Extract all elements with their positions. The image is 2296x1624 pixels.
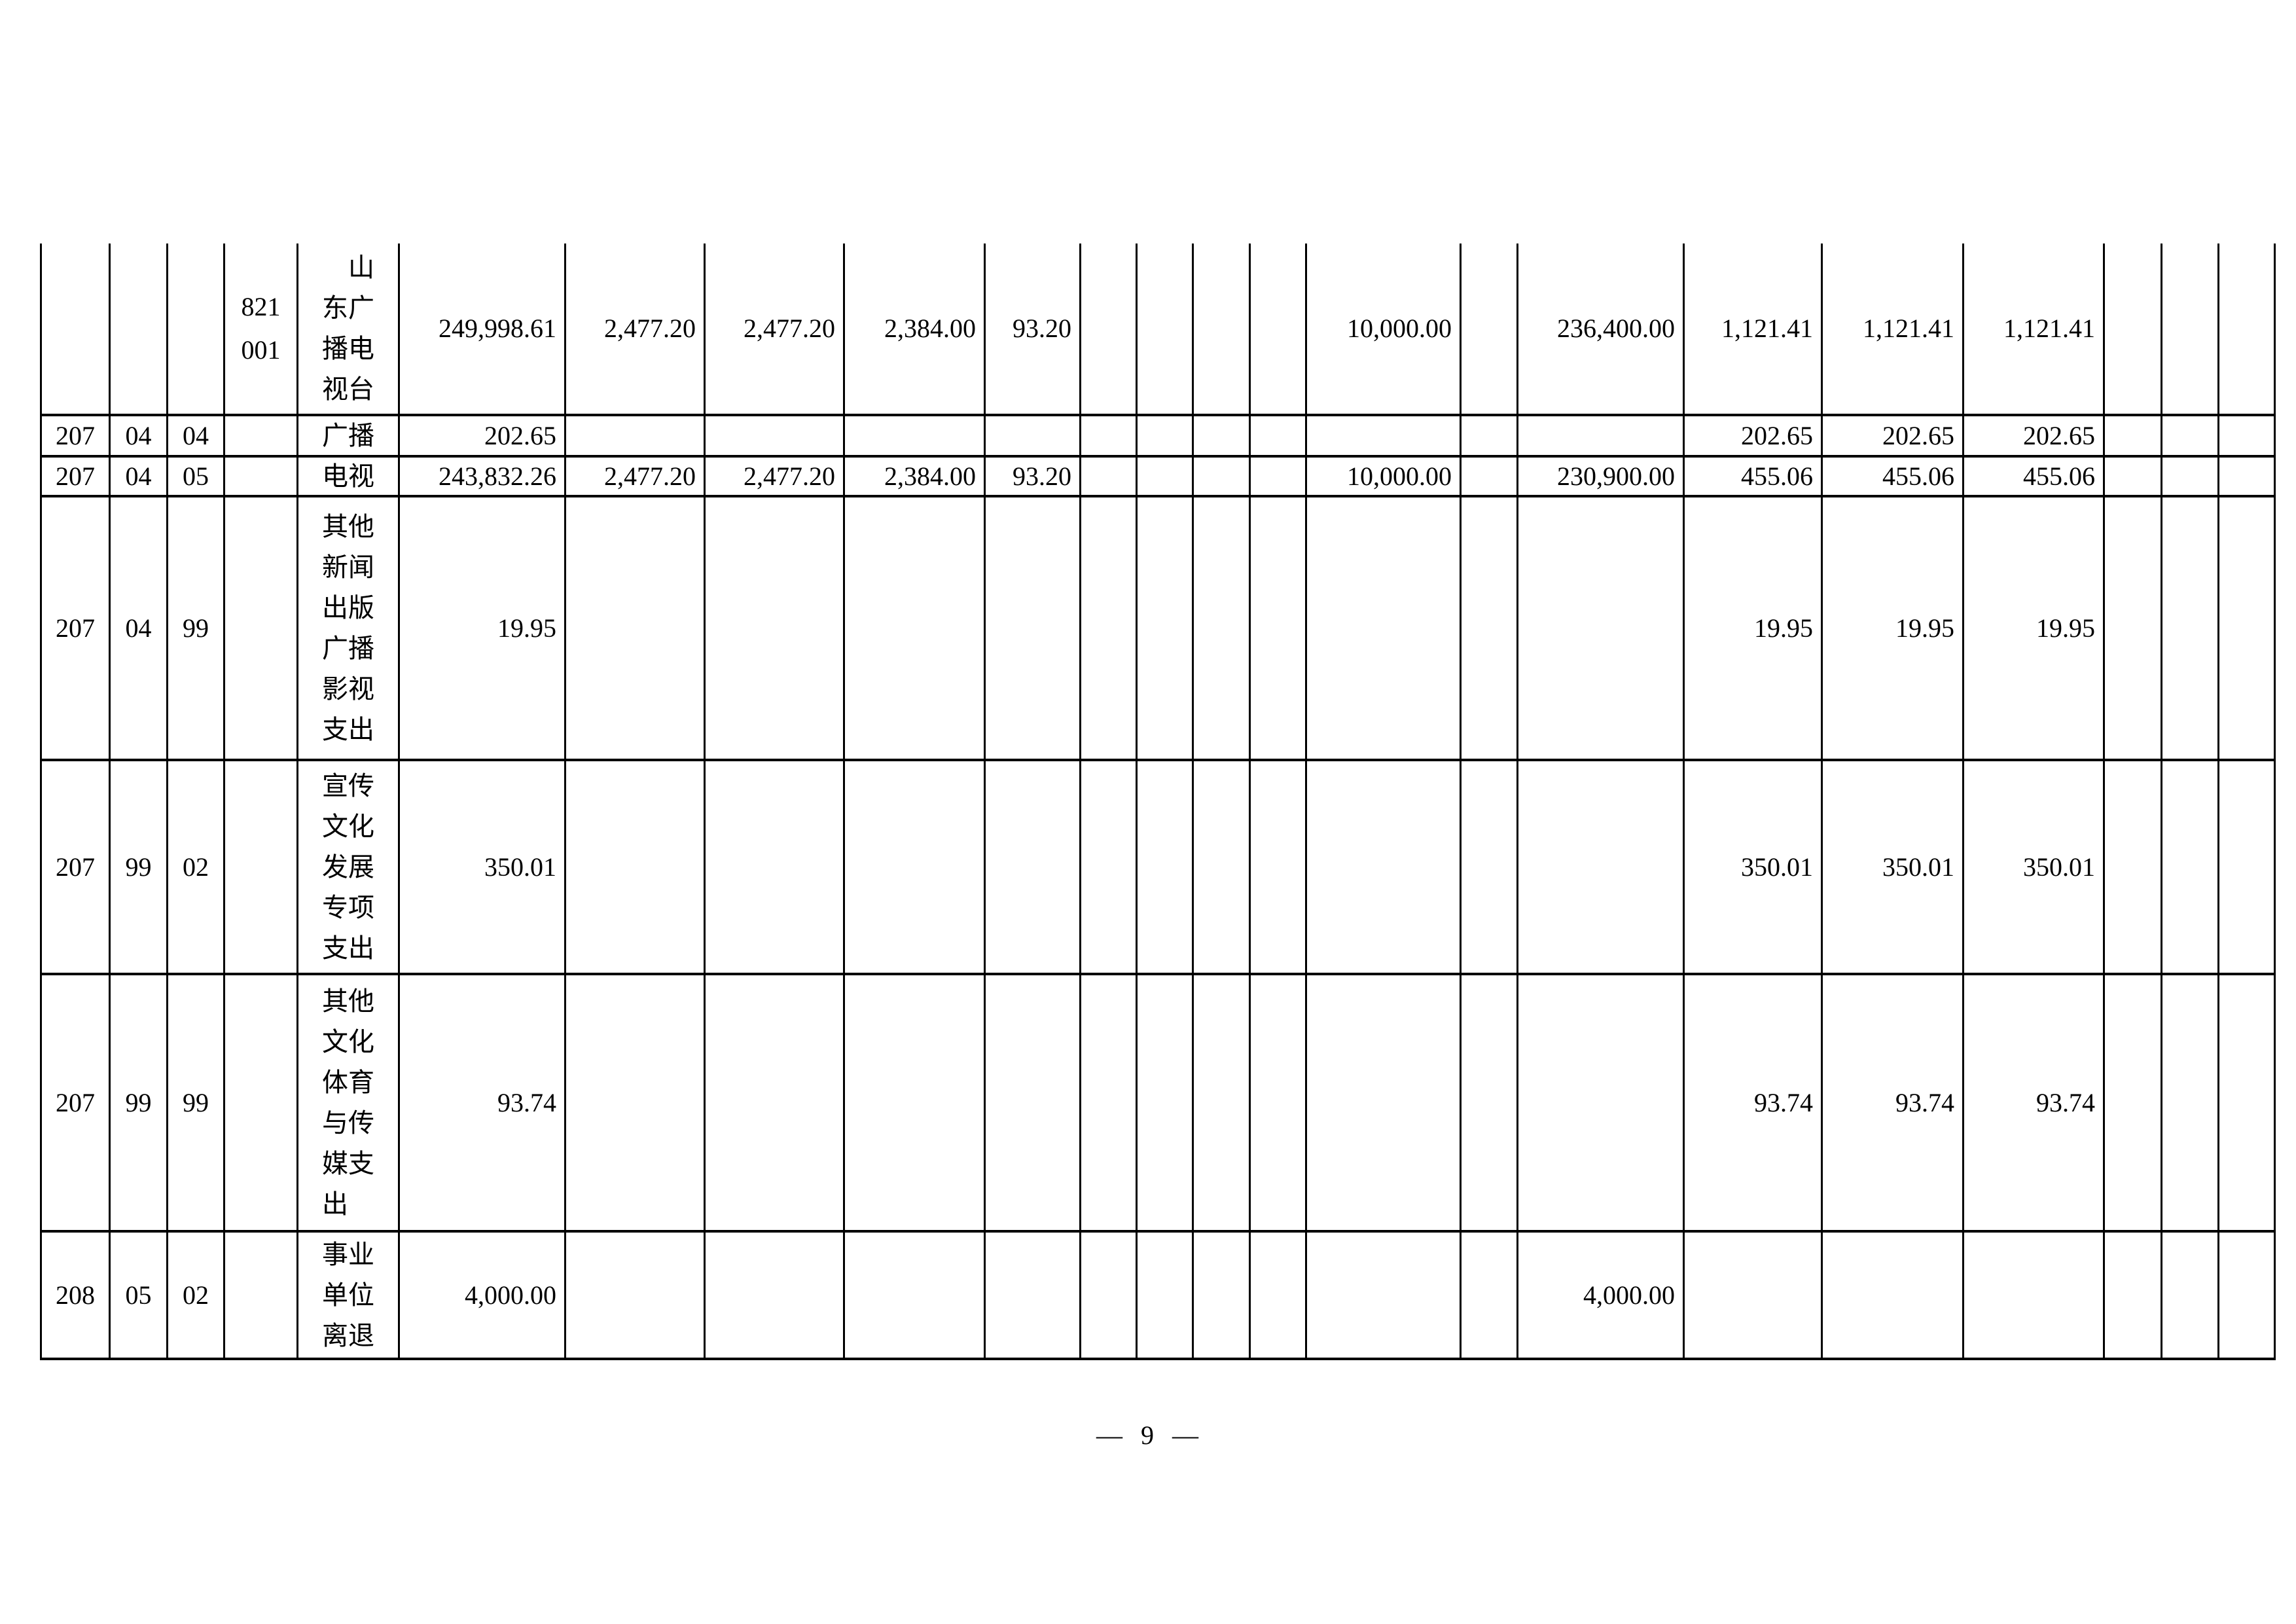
amount-cell: 2,477.20 bbox=[706, 244, 845, 416]
subject-code-cell: 207 bbox=[40, 761, 111, 975]
amount-cell bbox=[1518, 975, 1685, 1233]
table-row: 2070405电视243,832.262,477.202,477.202,384… bbox=[40, 458, 2276, 497]
table-row: 2079902宣传 文化 发展 专项 支出350.01350.01350.013… bbox=[40, 761, 2276, 975]
amount-cell bbox=[1251, 1233, 1307, 1360]
amount-cell bbox=[1081, 458, 1138, 497]
amount-cell bbox=[1081, 975, 1138, 1233]
amount-cell: 350.01 bbox=[1685, 761, 1823, 975]
cell-text: 93.74 bbox=[1895, 1086, 1954, 1120]
cell-text: 350.01 bbox=[484, 850, 556, 884]
cell-text: 4,000.00 bbox=[465, 1278, 556, 1312]
amount-cell bbox=[1081, 1233, 1138, 1360]
amount-cell bbox=[706, 1233, 845, 1360]
amount-cell bbox=[1194, 458, 1251, 497]
amount-cell bbox=[1462, 416, 1518, 458]
amount-cell bbox=[1138, 1233, 1194, 1360]
subject-code-cell: 04 bbox=[111, 416, 168, 458]
amount-cell bbox=[2219, 416, 2276, 458]
cell-text: 236,400.00 bbox=[1557, 312, 1675, 346]
amount-cell bbox=[1251, 416, 1307, 458]
amount-cell: 202.65 bbox=[400, 416, 566, 458]
amount-cell bbox=[706, 497, 845, 761]
amount-cell bbox=[1462, 761, 1518, 975]
amount-cell bbox=[2105, 975, 2162, 1233]
cell-text: 350.01 bbox=[1882, 850, 1954, 884]
amount-cell: 2,477.20 bbox=[566, 244, 706, 416]
amount-cell bbox=[1194, 975, 1251, 1233]
amount-cell bbox=[986, 416, 1081, 458]
cell-text: 202.65 bbox=[2023, 419, 2095, 453]
amount-cell bbox=[706, 761, 845, 975]
cell-text: 2,384.00 bbox=[884, 460, 976, 494]
amount-cell bbox=[1307, 416, 1462, 458]
cell-text: 其他 新闻 出版 广播 影视 支出 bbox=[322, 507, 374, 750]
amount-cell bbox=[1462, 458, 1518, 497]
amount-cell bbox=[2219, 244, 2276, 416]
subject-name-cell: 宣传 文化 发展 专项 支出 bbox=[298, 761, 400, 975]
cell-text: 207 bbox=[56, 416, 95, 458]
cell-text: 电视 bbox=[322, 458, 374, 497]
amount-cell bbox=[1518, 761, 1685, 975]
amount-cell bbox=[1462, 975, 1518, 1233]
subject-code-cell: 02 bbox=[168, 1233, 225, 1360]
subject-code-cell: 02 bbox=[168, 761, 225, 975]
amount-cell bbox=[1194, 497, 1251, 761]
amount-cell bbox=[986, 497, 1081, 761]
cell-text: 230,900.00 bbox=[1557, 460, 1675, 494]
unit-code-cell bbox=[225, 975, 298, 1233]
subject-code-cell bbox=[40, 244, 111, 416]
amount-cell: 4,000.00 bbox=[1518, 1233, 1685, 1360]
cell-text: 99 bbox=[183, 1081, 209, 1125]
cell-text: 2,384.00 bbox=[884, 312, 976, 346]
amount-cell bbox=[2162, 1233, 2219, 1360]
subject-code-cell: 99 bbox=[168, 497, 225, 761]
amount-cell: 455.06 bbox=[1964, 458, 2105, 497]
amount-cell bbox=[1251, 975, 1307, 1233]
amount-cell bbox=[986, 1233, 1081, 1360]
amount-cell: 249,998.61 bbox=[400, 244, 566, 416]
amount-cell bbox=[1138, 416, 1194, 458]
amount-cell bbox=[1081, 497, 1138, 761]
cell-text: 2,477.20 bbox=[744, 312, 835, 346]
cell-text: 207 bbox=[56, 846, 95, 889]
cell-text: 207 bbox=[56, 607, 95, 650]
table-row: 2070499其他 新闻 出版 广播 影视 支出19.9519.9519.951… bbox=[40, 497, 2276, 761]
cell-text: 广播 bbox=[322, 416, 374, 456]
subject-code-cell bbox=[111, 244, 168, 416]
subject-code-cell: 05 bbox=[111, 1233, 168, 1360]
cell-text: 821 001 bbox=[242, 285, 281, 372]
amount-cell bbox=[845, 497, 986, 761]
amount-cell bbox=[1081, 761, 1138, 975]
cell-text: 04 bbox=[126, 607, 152, 650]
unit-code-cell bbox=[225, 761, 298, 975]
amount-cell bbox=[2162, 244, 2219, 416]
subject-name-cell: 其他 新闻 出版 广播 影视 支出 bbox=[298, 497, 400, 761]
amount-cell bbox=[566, 497, 706, 761]
subject-name-cell: 电视 bbox=[298, 458, 400, 497]
amount-cell bbox=[706, 416, 845, 458]
cell-text: 02 bbox=[183, 1274, 209, 1317]
amount-cell bbox=[1462, 1233, 1518, 1360]
cell-text: 10,000.00 bbox=[1347, 460, 1452, 494]
amount-cell: 1,121.41 bbox=[1685, 244, 1823, 416]
cell-text: 93.74 bbox=[497, 1086, 556, 1120]
subject-code-cell: 04 bbox=[111, 497, 168, 761]
unit-code-cell bbox=[225, 497, 298, 761]
amount-cell bbox=[845, 416, 986, 458]
amount-cell bbox=[566, 761, 706, 975]
amount-cell bbox=[2219, 497, 2276, 761]
amount-cell bbox=[986, 975, 1081, 1233]
cell-text: 1,121.41 bbox=[1721, 312, 1813, 346]
amount-cell: 19.95 bbox=[400, 497, 566, 761]
subject-code-cell: 99 bbox=[111, 761, 168, 975]
amount-cell bbox=[1138, 244, 1194, 416]
cell-text: 99 bbox=[126, 1081, 152, 1125]
table-row: 2070404广播202.65202.65202.65202.65 bbox=[40, 416, 2276, 458]
table-row: 821 001 山 东广 播电 视台249,998.612,477.202,47… bbox=[40, 244, 2276, 416]
cell-text: 其他 文化 体育 与传 媒支 出 bbox=[322, 981, 374, 1225]
subject-name-cell: 其他 文化 体育 与传 媒支 出 bbox=[298, 975, 400, 1233]
amount-cell bbox=[2105, 416, 2162, 458]
amount-cell: 455.06 bbox=[1685, 458, 1823, 497]
amount-cell: 93.74 bbox=[400, 975, 566, 1233]
amount-cell bbox=[2219, 761, 2276, 975]
amount-cell bbox=[2105, 244, 2162, 416]
amount-cell: 19.95 bbox=[1685, 497, 1823, 761]
amount-cell bbox=[2219, 458, 2276, 497]
amount-cell: 1,121.41 bbox=[1823, 244, 1964, 416]
amount-cell bbox=[1251, 458, 1307, 497]
cell-text: 243,832.26 bbox=[439, 460, 556, 494]
amount-cell: 202.65 bbox=[1685, 416, 1823, 458]
table-row: 2079999其他 文化 体育 与传 媒支 出93.7493.7493.7493… bbox=[40, 975, 2276, 1233]
amount-cell bbox=[2105, 761, 2162, 975]
amount-cell: 93.74 bbox=[1685, 975, 1823, 1233]
amount-cell: 202.65 bbox=[1964, 416, 2105, 458]
amount-cell: 2,384.00 bbox=[845, 244, 986, 416]
amount-cell bbox=[2162, 416, 2219, 458]
amount-cell: 2,477.20 bbox=[706, 458, 845, 497]
amount-cell bbox=[2105, 497, 2162, 761]
amount-cell: 93.20 bbox=[986, 244, 1081, 416]
amount-cell bbox=[1462, 244, 1518, 416]
amount-cell bbox=[2162, 458, 2219, 497]
cell-text: 2,477.20 bbox=[744, 460, 835, 494]
amount-cell: 2,477.20 bbox=[566, 458, 706, 497]
cell-text: 93.74 bbox=[1754, 1086, 1813, 1120]
subject-code-cell: 208 bbox=[40, 1233, 111, 1360]
cell-text: 455.06 bbox=[1741, 460, 1813, 494]
cell-text: 05 bbox=[183, 458, 209, 497]
amount-cell bbox=[1518, 497, 1685, 761]
amount-cell bbox=[1251, 244, 1307, 416]
amount-cell: 236,400.00 bbox=[1518, 244, 1685, 416]
document-page: { "page": { "footer_page_number": "— 9 —… bbox=[0, 0, 2296, 1624]
amount-cell: 19.95 bbox=[1823, 497, 1964, 761]
amount-cell bbox=[1194, 244, 1251, 416]
cell-text: 455.06 bbox=[2023, 460, 2095, 494]
subject-code-cell: 207 bbox=[40, 416, 111, 458]
amount-cell bbox=[1138, 458, 1194, 497]
amount-cell bbox=[2219, 1233, 2276, 1360]
cell-text: 93.20 bbox=[1013, 460, 1071, 494]
cell-text: 4,000.00 bbox=[1583, 1278, 1675, 1312]
amount-cell: 10,000.00 bbox=[1307, 458, 1462, 497]
cell-text: 202.65 bbox=[1741, 419, 1813, 453]
amount-cell bbox=[1081, 416, 1138, 458]
subject-name-cell: 山 东广 播电 视台 bbox=[298, 244, 400, 416]
unit-code-cell bbox=[225, 416, 298, 458]
cell-text: 208 bbox=[56, 1274, 95, 1317]
cell-text: 19.95 bbox=[1754, 611, 1813, 645]
amount-cell bbox=[1518, 416, 1685, 458]
amount-cell: 230,900.00 bbox=[1518, 458, 1685, 497]
amount-cell: 93.20 bbox=[986, 458, 1081, 497]
table-row: 2080502事业 单位 离退4,000.004,000.00 bbox=[40, 1233, 2276, 1360]
cell-text: 19.95 bbox=[2036, 611, 2095, 645]
amount-cell bbox=[1307, 1233, 1462, 1360]
cell-text: 04 bbox=[183, 416, 209, 458]
amount-cell bbox=[1307, 497, 1462, 761]
cell-text: 350.01 bbox=[1741, 850, 1813, 884]
amount-cell bbox=[1685, 1233, 1823, 1360]
subject-code-cell bbox=[168, 244, 225, 416]
amount-cell bbox=[566, 975, 706, 1233]
amount-cell bbox=[845, 761, 986, 975]
cell-text: 19.95 bbox=[497, 611, 556, 645]
amount-cell bbox=[845, 975, 986, 1233]
amount-cell bbox=[2105, 458, 2162, 497]
cell-text: 2,477.20 bbox=[604, 312, 696, 346]
cell-text: 19.95 bbox=[1895, 611, 1954, 645]
subject-code-cell: 04 bbox=[111, 458, 168, 497]
cell-text: 2,477.20 bbox=[604, 460, 696, 494]
amount-cell bbox=[1138, 975, 1194, 1233]
amount-cell: 202.65 bbox=[1823, 416, 1964, 458]
amount-cell bbox=[1081, 244, 1138, 416]
amount-cell: 2,384.00 bbox=[845, 458, 986, 497]
subject-code-cell: 207 bbox=[40, 975, 111, 1233]
amount-cell bbox=[1194, 1233, 1251, 1360]
amount-cell: 19.95 bbox=[1964, 497, 2105, 761]
subject-code-cell: 207 bbox=[40, 497, 111, 761]
cell-text: 04 bbox=[126, 416, 152, 458]
amount-cell bbox=[2219, 975, 2276, 1233]
subject-code-cell: 99 bbox=[168, 975, 225, 1233]
cell-text: 455.06 bbox=[1882, 460, 1954, 494]
amount-cell bbox=[1138, 497, 1194, 761]
unit-code-cell bbox=[225, 1233, 298, 1360]
subject-code-cell: 207 bbox=[40, 458, 111, 497]
amount-cell: 1,121.41 bbox=[1964, 244, 2105, 416]
cell-text: 350.01 bbox=[2023, 850, 2095, 884]
amount-cell bbox=[1138, 761, 1194, 975]
amount-cell bbox=[1251, 761, 1307, 975]
cell-text: 05 bbox=[126, 1274, 152, 1317]
amount-cell bbox=[2162, 975, 2219, 1233]
amount-cell: 455.06 bbox=[1823, 458, 1964, 497]
cell-text: 山 东广 播电 视台 bbox=[322, 247, 374, 410]
cell-text: 99 bbox=[183, 607, 209, 650]
amount-cell bbox=[1251, 497, 1307, 761]
cell-text: 宣传 文化 发展 专项 支出 bbox=[322, 766, 374, 969]
amount-cell bbox=[566, 1233, 706, 1360]
unit-code-cell: 821 001 bbox=[225, 244, 298, 416]
amount-cell bbox=[2105, 1233, 2162, 1360]
cell-text: 04 bbox=[126, 458, 152, 497]
subject-name-cell: 事业 单位 离退 bbox=[298, 1233, 400, 1360]
amount-cell bbox=[986, 761, 1081, 975]
amount-cell bbox=[1823, 1233, 1964, 1360]
amount-cell bbox=[1307, 761, 1462, 975]
amount-cell: 243,832.26 bbox=[400, 458, 566, 497]
unit-code-cell bbox=[225, 458, 298, 497]
amount-cell bbox=[1194, 416, 1251, 458]
amount-cell: 4,000.00 bbox=[400, 1233, 566, 1360]
cell-text: 93.20 bbox=[1013, 312, 1071, 346]
amount-cell bbox=[706, 975, 845, 1233]
cell-text: 1,121.41 bbox=[1863, 312, 1954, 346]
cell-text: 99 bbox=[126, 846, 152, 889]
subject-code-cell: 99 bbox=[111, 975, 168, 1233]
cell-text: 10,000.00 bbox=[1347, 312, 1452, 346]
cell-text: 93.74 bbox=[2036, 1086, 2095, 1120]
amount-cell: 350.01 bbox=[400, 761, 566, 975]
amount-cell: 10,000.00 bbox=[1307, 244, 1462, 416]
cell-text: 02 bbox=[183, 846, 209, 889]
amount-cell bbox=[1462, 497, 1518, 761]
amount-cell: 93.74 bbox=[1823, 975, 1964, 1233]
amount-cell: 350.01 bbox=[1823, 761, 1964, 975]
cell-text: 1,121.41 bbox=[2003, 312, 2095, 346]
cell-text: 事业 单位 离退 bbox=[322, 1235, 374, 1356]
cell-text: 207 bbox=[56, 1081, 95, 1125]
amount-cell: 350.01 bbox=[1964, 761, 2105, 975]
amount-cell bbox=[1964, 1233, 2105, 1360]
subject-name-cell: 广播 bbox=[298, 416, 400, 458]
cell-text: 207 bbox=[56, 458, 95, 497]
amount-cell bbox=[1194, 761, 1251, 975]
amount-cell bbox=[2162, 761, 2219, 975]
cell-text: 202.65 bbox=[1882, 419, 1954, 453]
amount-cell bbox=[566, 416, 706, 458]
amount-cell bbox=[845, 1233, 986, 1360]
cell-text: 249,998.61 bbox=[439, 312, 556, 346]
page-number: — 9 — bbox=[0, 1419, 2296, 1452]
amount-cell bbox=[2162, 497, 2219, 761]
budget-table: 821 001 山 东广 播电 视台249,998.612,477.202,47… bbox=[40, 244, 2276, 1360]
cell-text: 202.65 bbox=[484, 419, 556, 453]
subject-code-cell: 05 bbox=[168, 458, 225, 497]
subject-code-cell: 04 bbox=[168, 416, 225, 458]
amount-cell bbox=[1307, 975, 1462, 1233]
amount-cell: 93.74 bbox=[1964, 975, 2105, 1233]
